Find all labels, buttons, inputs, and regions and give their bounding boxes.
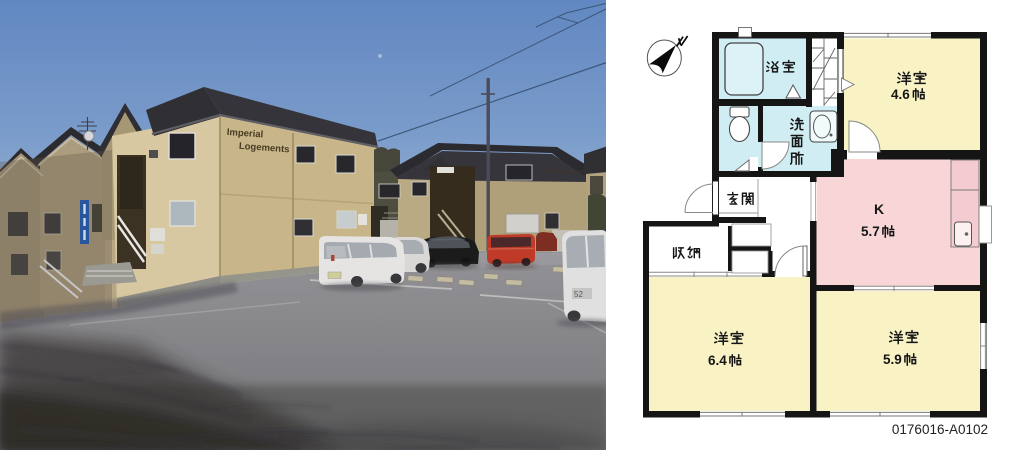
svg-text:5.9: 5.9 <box>883 352 902 367</box>
svg-text:0176016-A0102: 0176016-A0102 <box>892 422 988 437</box>
svg-text:5.7: 5.7 <box>861 224 880 239</box>
svg-text:6.4: 6.4 <box>708 353 727 368</box>
svg-text:K: K <box>874 201 884 217</box>
svg-text:4.6: 4.6 <box>891 87 910 102</box>
